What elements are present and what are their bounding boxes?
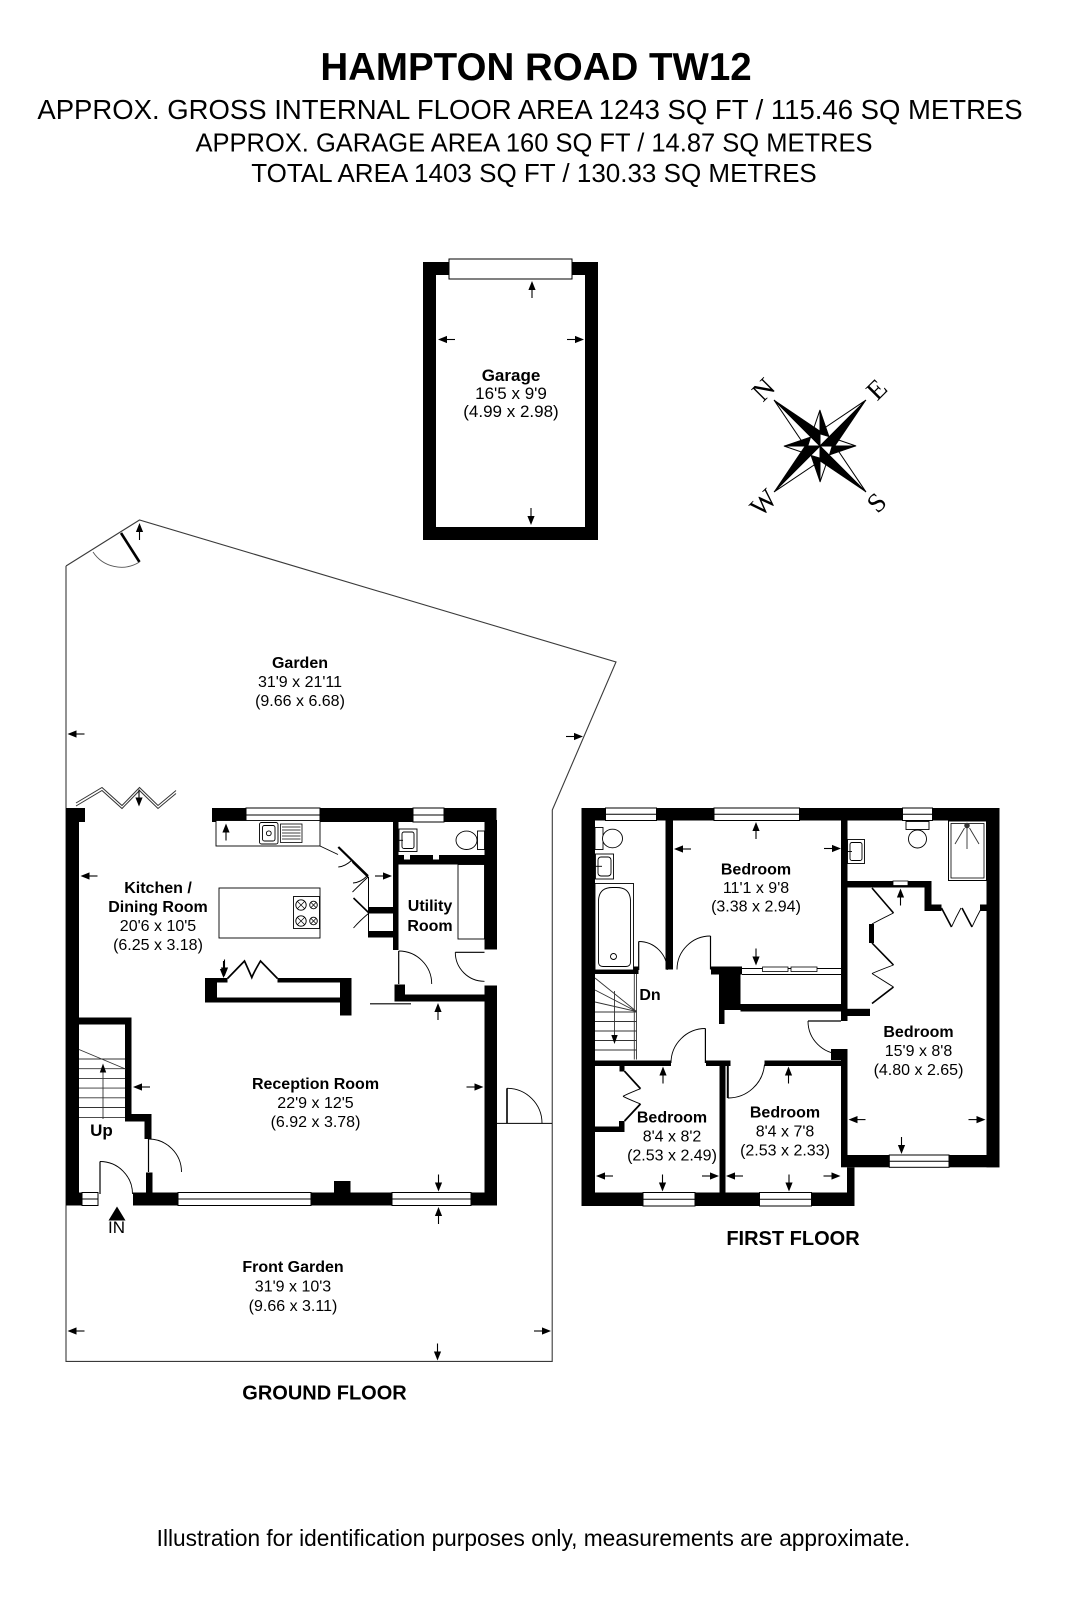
- svg-text:22'9 x 12'5: 22'9 x 12'5: [277, 1095, 353, 1112]
- svg-text:(9.66 x 3.11): (9.66 x 3.11): [249, 1298, 338, 1315]
- svg-text:Garage: Garage: [482, 366, 541, 385]
- svg-text:Kitchen /: Kitchen /: [124, 880, 192, 897]
- svg-text:Dining Room: Dining Room: [108, 899, 208, 916]
- svg-text:(9.66 x 6.68): (9.66 x 6.68): [255, 693, 345, 710]
- svg-text:FIRST FLOOR: FIRST FLOOR: [726, 1228, 860, 1250]
- svg-text:15'9 x 8'8: 15'9 x 8'8: [885, 1043, 953, 1060]
- svg-text:31'9 x 21'11: 31'9 x 21'11: [258, 674, 342, 691]
- svg-text:(4.80 x 2.65): (4.80 x 2.65): [874, 1062, 964, 1079]
- svg-text:11'1 x 9'8: 11'1 x 9'8: [723, 880, 789, 897]
- svg-text:Bedroom: Bedroom: [721, 862, 791, 879]
- svg-text:IN: IN: [108, 1218, 125, 1237]
- svg-text:Up: Up: [90, 1121, 113, 1140]
- svg-text:Room: Room: [407, 918, 452, 935]
- svg-text:(6.92 x 3.78): (6.92 x 3.78): [271, 1114, 361, 1131]
- svg-text:Front Garden: Front Garden: [242, 1259, 343, 1276]
- svg-text:GROUND FLOOR: GROUND FLOOR: [242, 1383, 407, 1405]
- svg-text:Dn: Dn: [639, 987, 660, 1004]
- svg-text:31'9 x 10'3: 31'9 x 10'3: [255, 1279, 331, 1296]
- svg-text:Illustration for identificatio: Illustration for identification purposes…: [157, 1525, 911, 1551]
- svg-text:(6.25 x 3.18): (6.25 x 3.18): [113, 937, 203, 954]
- svg-text:Bedroom: Bedroom: [883, 1024, 953, 1041]
- svg-text:Reception Room: Reception Room: [252, 1076, 379, 1093]
- svg-text:Bedroom: Bedroom: [637, 1110, 707, 1127]
- svg-text:Utility: Utility: [408, 898, 453, 915]
- svg-text:APPROX. GROSS INTERNAL FLOOR A: APPROX. GROSS INTERNAL FLOOR AREA 1243 S…: [37, 94, 1022, 125]
- svg-text:Garden: Garden: [272, 655, 328, 672]
- svg-text:16'5 x 9'9: 16'5 x 9'9: [475, 384, 547, 403]
- svg-text:8'4 x 7'8: 8'4 x 7'8: [756, 1124, 815, 1141]
- svg-text:TOTAL AREA 1403 SQ FT / 130.33: TOTAL AREA 1403 SQ FT / 130.33 SQ METRES: [251, 158, 817, 188]
- svg-text:(2.53 x 2.33): (2.53 x 2.33): [740, 1143, 830, 1160]
- svg-text:20'6 x 10'5: 20'6 x 10'5: [120, 918, 196, 935]
- svg-text:Bedroom: Bedroom: [750, 1105, 820, 1122]
- svg-text:8'4 x 8'2: 8'4 x 8'2: [643, 1129, 702, 1146]
- svg-text:APPROX. GARAGE AREA 160 SQ FT: APPROX. GARAGE AREA 160 SQ FT / 14.87 SQ…: [196, 130, 873, 158]
- svg-text:(4.99 x 2.98): (4.99 x 2.98): [463, 402, 558, 421]
- svg-text:(3.38 x 2.94): (3.38 x 2.94): [711, 899, 801, 916]
- svg-text:(2.53 x 2.49): (2.53 x 2.49): [627, 1148, 717, 1165]
- svg-text:HAMPTON ROAD TW12: HAMPTON ROAD TW12: [320, 46, 751, 89]
